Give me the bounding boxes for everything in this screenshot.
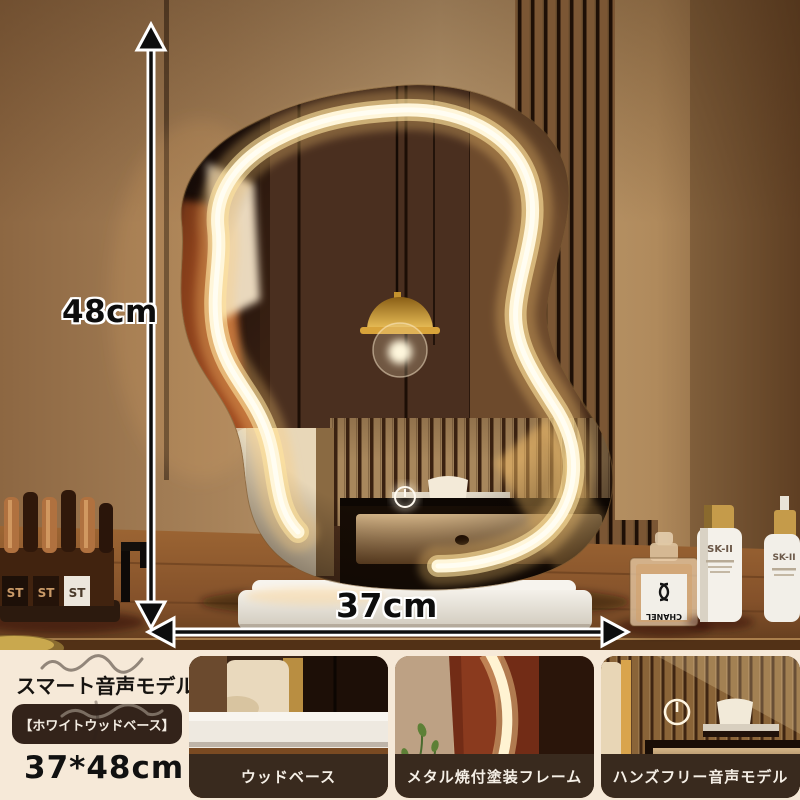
thumbnail-caption: ハンズフリー音声モデル — [601, 754, 800, 798]
variant-badge: 【ホワイトウッドベース】 — [12, 704, 182, 744]
thumbnail-caption: ウッドベース — [189, 754, 388, 798]
thumbnail-wood-base[interactable]: ウッドベース — [189, 656, 388, 798]
skii-label-2: SK-II — [772, 553, 795, 563]
lipstick-label-2: ST — [38, 586, 56, 600]
thumbnail-caption: メタル焼付塗装フレーム — [395, 754, 594, 798]
height-dimension-label: 48cm — [62, 294, 158, 330]
model-title: スマート音声モデル — [16, 670, 195, 699]
skii-label-1: SK-II — [707, 544, 733, 555]
thumbnail-voice-model[interactable]: ハンズフリー音声モデル — [601, 656, 800, 798]
main-photo: ST ST ST — [0, 0, 800, 652]
lipstick-label-1: ST — [7, 586, 25, 600]
size-text: 37*48cm — [24, 750, 184, 786]
lipstick-label-3: ST — [69, 586, 87, 600]
lipstick-label-plate: ST ST ST — [2, 576, 90, 606]
cup-closeup — [717, 699, 753, 728]
info-panel: スマート音声モデル 【ホワイトウッドベース】 37*48cm — [0, 650, 190, 800]
thumbnail-gallery: ウッドベース — [189, 656, 800, 798]
width-dimension-label: 37cm — [336, 586, 438, 625]
bottom-panel: スマート音声モデル 【ホワイトウッドベース】 37*48cm — [0, 650, 800, 800]
product-image: ST ST ST — [0, 0, 800, 800]
chanel-label: CHANEL — [646, 612, 682, 621]
thumbnail-metal-frame[interactable]: メタル焼付塗装フレーム — [395, 656, 594, 798]
